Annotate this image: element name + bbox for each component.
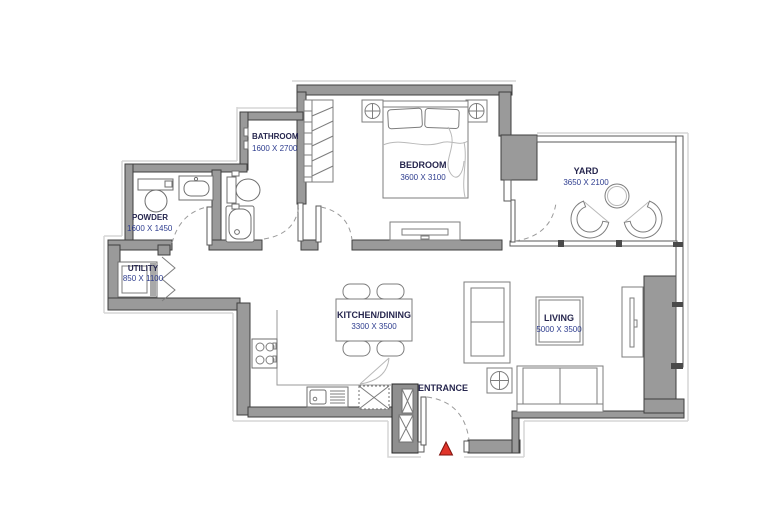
stove-icon xyxy=(252,339,277,368)
dining-table-icon xyxy=(336,299,412,341)
toilet-icon xyxy=(227,177,260,203)
bedroom-door-leaf xyxy=(316,206,321,242)
living-dims: 5000 X 3500 xyxy=(536,325,582,334)
living-label: LIVING xyxy=(544,313,574,323)
dresser-icon xyxy=(390,222,460,240)
bedroom-dims: 3600 X 3100 xyxy=(400,173,446,182)
utility-label: UTILITY xyxy=(128,264,159,273)
dining-chair-icon xyxy=(377,284,404,299)
yard-chair-icon xyxy=(624,201,662,238)
entrance-marker-icon xyxy=(440,442,453,455)
dining-chair-icon xyxy=(343,284,370,299)
yard-label: YARD xyxy=(574,166,599,176)
entrance-door-arc xyxy=(427,397,469,440)
nightstand-icon xyxy=(466,100,487,122)
powder-door-arc xyxy=(172,207,207,243)
yard-table-icon xyxy=(605,184,629,208)
toilet-icon xyxy=(138,179,173,212)
powder-dims: 1600 X 1450 xyxy=(127,224,173,233)
sofa-icon xyxy=(464,282,510,363)
wardrobe-icon xyxy=(304,100,333,182)
duct-shaft xyxy=(392,384,469,453)
bathroom-door-arc xyxy=(264,205,299,239)
bathtub-icon xyxy=(226,206,254,242)
kitchen-sink-icon xyxy=(307,387,348,407)
bathroom-dims: 1600 X 2700 xyxy=(252,144,298,153)
nightstand-icon xyxy=(362,100,383,122)
floorplan-canvas: POWDER 1600 X 1450 BATHROOM 1600 X 2700 … xyxy=(0,0,783,525)
powder-door-leaf xyxy=(207,207,212,245)
powder-label: POWDER xyxy=(132,213,168,222)
vanity-sink-icon xyxy=(179,176,213,200)
kitchen-dining-dims: 3300 X 3500 xyxy=(351,322,397,331)
bathroom-label: BATHROOM xyxy=(252,132,299,141)
utility-dims: 850 X 1100 xyxy=(123,274,164,283)
dining-chair-icon xyxy=(343,341,370,356)
yard-dims: 3650 X 2100 xyxy=(563,178,609,187)
powder-fixtures xyxy=(138,176,213,212)
dining-chair-icon xyxy=(377,341,404,356)
floorplan-page: POWDER 1600 X 1450 BATHROOM 1600 X 2700 … xyxy=(0,0,783,525)
tv-unit-icon xyxy=(622,287,643,357)
dishwasher-icon xyxy=(359,358,389,409)
sofa-icon xyxy=(517,366,603,412)
yard-chair-icon xyxy=(571,201,609,238)
yard-door-leaf xyxy=(511,200,515,242)
bedroom-door-arc xyxy=(321,207,352,240)
bifold-door-icon xyxy=(162,257,175,301)
bedroom-label: BEDROOM xyxy=(400,160,447,170)
side-table-icon xyxy=(487,368,512,393)
entrance-door-leaf xyxy=(421,397,426,445)
yard-door-arc xyxy=(515,203,556,241)
bed-icon xyxy=(383,101,468,198)
kitchen-dining-label: KITCHEN/DINING xyxy=(337,310,411,320)
dining-set xyxy=(336,284,412,356)
entrance-label: ENTRANCE xyxy=(418,383,468,393)
